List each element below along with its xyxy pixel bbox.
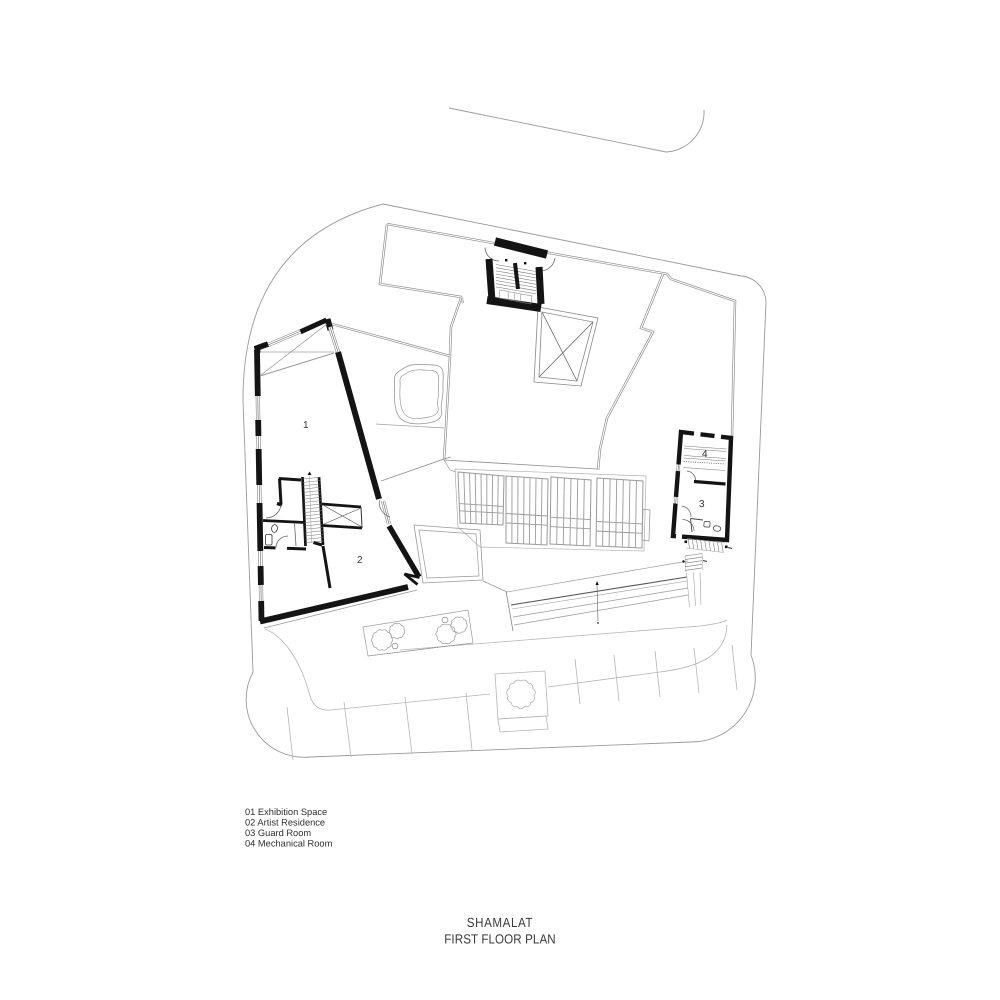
svg-text:2: 2 — [357, 555, 363, 566]
svg-text:FIRST FLOOR PLAN: FIRST FLOOR PLAN — [444, 932, 556, 947]
svg-text:3: 3 — [699, 499, 705, 510]
svg-text:01 Exhibition Space: 01 Exhibition Space — [245, 807, 327, 817]
svg-text:02 Artist Residence: 02 Artist Residence — [245, 818, 325, 828]
svg-text:03 Guard Room: 03 Guard Room — [245, 828, 311, 838]
svg-text:1: 1 — [303, 420, 309, 431]
svg-text:04 Mechanical Room: 04 Mechanical Room — [245, 839, 333, 849]
svg-text:SHAMALAT: SHAMALAT — [467, 916, 533, 931]
svg-text:4: 4 — [702, 449, 708, 460]
